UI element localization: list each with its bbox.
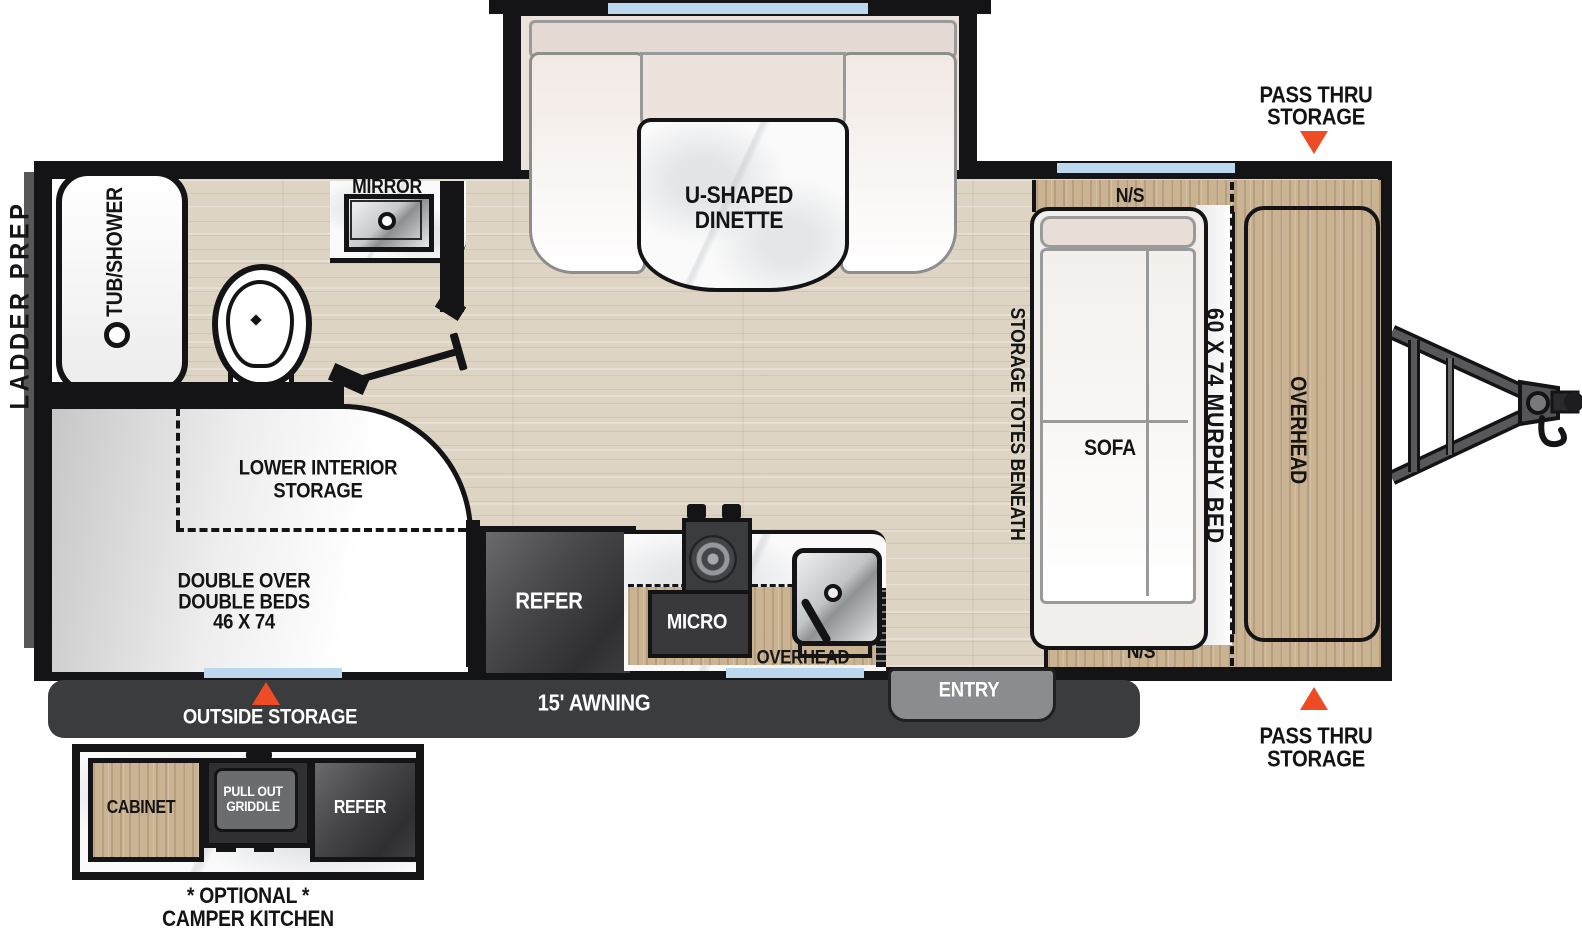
- dinette-window: [608, 3, 868, 14]
- inset-caption-2: CAMPER KITCHEN: [162, 908, 334, 930]
- awning-label: 15' AWNING: [538, 692, 651, 715]
- micro-label: MICRO: [667, 612, 727, 633]
- tub-drain-icon: [104, 322, 130, 348]
- refer-wall: [466, 520, 480, 667]
- outside-storage-label: OUTSIDE STORAGE: [183, 707, 357, 728]
- sofa-back-band: [1040, 216, 1196, 248]
- inset-griddle-foot-right: [254, 843, 274, 852]
- slideout-wall-left: [503, 0, 521, 170]
- kitchen-window: [726, 668, 864, 678]
- tub-shower-label: TUB/SHOWER: [104, 187, 126, 317]
- lower-storage-label-2: STORAGE: [273, 481, 362, 502]
- inset-griddle-label-2: GRIDDLE: [226, 799, 280, 813]
- slideout-tab-right: [975, 0, 991, 14]
- lower-storage-dash-h: [176, 528, 466, 532]
- burner-top-icon: [689, 535, 737, 583]
- mirror-label: MIRROR: [352, 177, 422, 197]
- storage-totes-label: STORAGE TOTES BENEATH: [1007, 307, 1027, 540]
- overhead-front-label: OVERHEAD: [1287, 376, 1309, 484]
- beds-label-1: DOUBLE OVER: [178, 571, 311, 592]
- dinette-bench-left: [529, 52, 646, 274]
- dinette-bench-back: [640, 52, 846, 128]
- dinette-label-1: U-SHAPED: [685, 184, 793, 208]
- pass-thru-top-arrow: [1300, 131, 1328, 154]
- lower-storage-label-1: LOWER INTERIOR: [239, 458, 398, 479]
- entry-label: ENTRY: [939, 680, 1000, 701]
- murphy-fold-dash: [1230, 182, 1234, 666]
- beds-label-2: DOUBLE BEDS: [178, 592, 310, 613]
- cooktop-knob-right: [722, 504, 741, 519]
- nightstand-top-label: N/S: [1116, 186, 1145, 206]
- sofa-label: SOFA: [1084, 437, 1136, 459]
- sink-faucet-icon: [824, 584, 842, 602]
- slideout-wall-right: [959, 0, 977, 170]
- pass-thru-bottom-label-1: PASS THRU: [1259, 725, 1372, 748]
- overhead-front-outline: [1244, 206, 1380, 642]
- outside-storage-arrow: [252, 682, 280, 705]
- floorplan-canvas: LADDER PREP TUB/SHOWER MIRROR LOWER INTE…: [0, 0, 1582, 932]
- inset-refer-label: REFER: [334, 798, 386, 816]
- sofa-cushion-divider-h: [1042, 420, 1188, 423]
- bed-window: [204, 668, 342, 678]
- ladder-prep-label: LADDER PREP: [7, 200, 34, 409]
- lower-storage-dash-v: [176, 408, 180, 528]
- vanity-faucet-icon: [378, 212, 396, 230]
- front-wall-window: [1057, 163, 1235, 173]
- sofa-cushion-divider-v: [1146, 250, 1149, 596]
- inset-cabinet-label: CABINET: [107, 798, 176, 816]
- beds-label-3: 46 X 74: [213, 612, 275, 633]
- pass-thru-bottom-label-2: STORAGE: [1267, 748, 1365, 771]
- refer-label: REFER: [515, 590, 582, 613]
- inset-caption-1: * OPTIONAL *: [187, 885, 309, 907]
- pass-thru-bottom-arrow: [1300, 687, 1328, 710]
- pass-thru-top-label-2: STORAGE: [1267, 106, 1365, 129]
- trailer-tongue: [1392, 300, 1582, 500]
- toilet-seat: [226, 280, 294, 368]
- inset-griddle-label-1: PULL OUT: [223, 784, 282, 798]
- inset-griddle-foot-left: [216, 843, 236, 852]
- kitchen-overhead-label: OVERHEAD: [757, 649, 850, 668]
- bath-lower-wall: [52, 382, 344, 404]
- dinette-label-2: DINETTE: [695, 209, 784, 233]
- sofa-cushions: [1040, 248, 1196, 604]
- dinette-bench-right: [840, 52, 957, 274]
- cooktop-knob-left: [687, 504, 706, 519]
